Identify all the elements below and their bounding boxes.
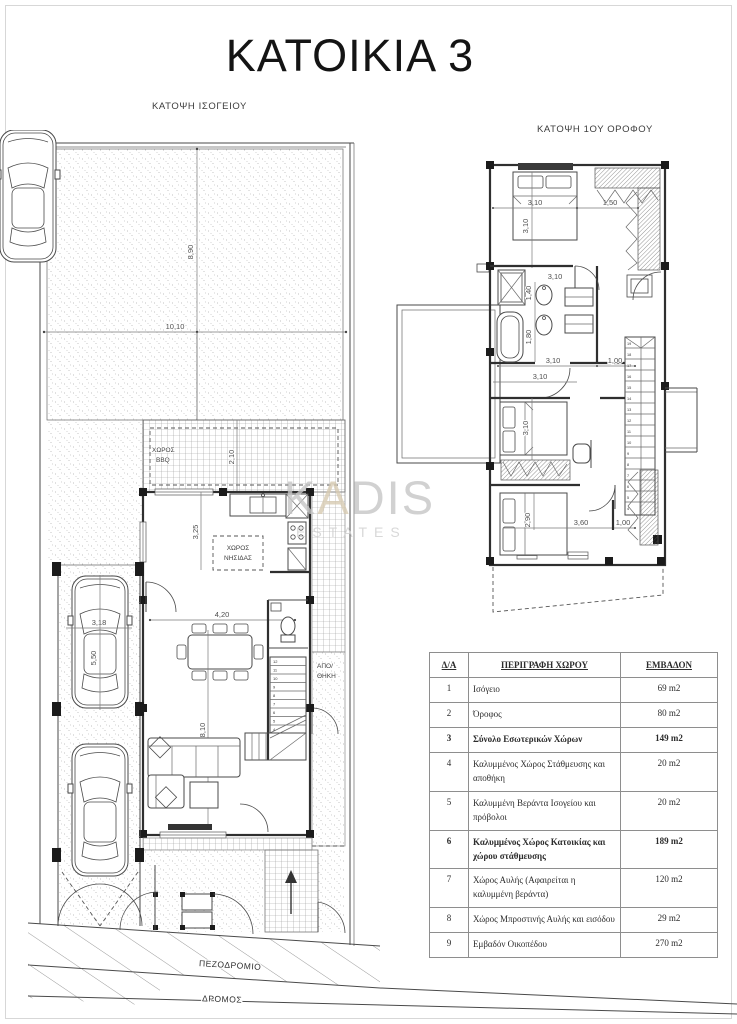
storage-label-2: ΘΗΚΗ: [317, 673, 336, 680]
row-area: 69 m2: [621, 678, 718, 703]
front-yard: [120, 850, 345, 934]
storage-label-1: ΑΠΟ/: [317, 663, 333, 670]
dim-bed1-d: 3,10: [521, 219, 530, 234]
stair-no: 6: [273, 710, 276, 715]
table-row: 9 Εμβαδόν Οικοπέδου 270 m2: [430, 933, 718, 958]
stair-no: 8: [273, 693, 276, 698]
table-row: 3 Σύνολο Εσωτερικών Χώρων 149 m2: [430, 727, 718, 752]
staircase-ground: 12 11 10 9 8 7 6 5 4: [245, 657, 306, 760]
dim-bed3-w: 3,60: [574, 518, 589, 527]
stair-no: 10: [627, 441, 631, 445]
veranda: [143, 838, 312, 850]
row-no: 5: [430, 791, 469, 830]
ground-plan-label: ΚΑΤΟΨΗ ΙΣΟΓΕΙΟΥ: [152, 101, 247, 112]
row-area: 120 m2: [621, 869, 718, 908]
header-desc: ΠΕΡΙΓΡΑΦΗ ΧΩΡΟΥ: [469, 653, 621, 678]
dim-closet-w: 1,50: [603, 198, 618, 207]
row-desc: Χώρος Αυλής (Αφαιρείται η καλυμμένη βερά…: [469, 869, 621, 908]
first-floor-plan: 3,10 1,50 3,10 3,10 1,40 1,80: [385, 130, 715, 640]
row-area: 270 m2: [621, 933, 718, 958]
dim-hall-w: 3,10: [546, 356, 561, 365]
bed3-door-arc: [589, 485, 615, 511]
dim-bath-w: 1,40: [524, 286, 533, 301]
row-desc: Εμβαδόν Οικοπέδου: [469, 933, 621, 958]
island-label-1: ΧΩΡΟΣ: [227, 545, 250, 552]
page-title: ΚΑΤΟΙΚΙΑ 3: [0, 30, 700, 82]
row-desc: Σύνολο Εσωτερικών Χώρων: [469, 727, 621, 752]
wc-sink: [271, 603, 281, 611]
row-desc: Όροφος: [469, 702, 621, 727]
table-row: 7 Χώρος Αυλής (Αφαιρείται η καλυμμένη βε…: [430, 869, 718, 908]
bed: [500, 493, 567, 555]
roof-outline: [493, 567, 663, 612]
dim-bed1-w: 3,10: [528, 198, 543, 207]
header-no: Δ/Α: [430, 653, 469, 678]
stair-no: 18: [627, 353, 631, 357]
stair-no: 11: [273, 668, 278, 673]
stair-no: 4: [627, 507, 629, 511]
table-row: 6 Καλυμμένος Χώρος Κατοικίας και χώρου σ…: [430, 830, 718, 869]
bathroom: 3,10 1,40 1,80: [490, 266, 625, 363]
hob: [288, 522, 306, 544]
table-row: 1 Ισόγειο 69 m2: [430, 678, 718, 703]
car: [0, 130, 60, 262]
desk-chair: [573, 444, 590, 463]
bedroom-2: 3,10 3,10: [490, 372, 625, 480]
row-no: 8: [430, 908, 469, 933]
row-area: 80 m2: [621, 702, 718, 727]
stair-no: 17: [627, 364, 631, 368]
stair-no: 9: [273, 685, 276, 690]
table-row: 5 Καλυμμένη Βεράντα Ισογείου και πρόβολο…: [430, 791, 718, 830]
stair-no: 14: [627, 397, 631, 401]
dim-bath-top: 3,10: [548, 272, 563, 281]
row-desc: Καλυμμένη Βεράντα Ισογείου και πρόβολοι: [469, 791, 621, 830]
stair-no: 9: [627, 452, 629, 456]
dim-bath-d: 1,80: [524, 330, 533, 345]
row-no: 3: [430, 727, 469, 752]
veranda-door-arc: [240, 804, 268, 832]
stair-no: 12: [273, 659, 278, 664]
row-no: 4: [430, 752, 469, 791]
side-ledge: [665, 388, 697, 452]
bbq-terrace: ΧΩΡΟΣ BBQ 2,10: [143, 420, 345, 492]
table-row: 4 Καλυμμένος Χώρος Στάθμευσης και αποθήκ…: [430, 752, 718, 791]
walk-in-closet: [595, 168, 661, 300]
bbq-label-1: ΧΩΡΟΣ: [152, 447, 175, 454]
dim-bed2-w: 3,10: [533, 372, 548, 381]
toilet: [281, 617, 295, 635]
dim-closet3-w: 1,00: [616, 518, 631, 527]
stair-no: 5: [273, 719, 276, 724]
dim-yard-width: 10,10: [166, 322, 185, 331]
dim-hall-d: 1,00: [608, 356, 623, 365]
header-area: ΕΜΒΑΔΟΝ: [621, 653, 718, 678]
dim-yard-depth: 8,90: [186, 245, 195, 260]
bedroom-3: 2,90 3,60 1,00: [490, 470, 658, 555]
row-desc: Καλυμμένος Χώρος Κατοικίας και χώρου στά…: [469, 830, 621, 869]
entry-door-arc: [146, 582, 176, 612]
row-area: 20 m2: [621, 752, 718, 791]
closet: [640, 470, 658, 545]
page: { "page": { "title": "ΚΑΤΟΙΚΙΑ 3" }, "wa…: [0, 0, 737, 1024]
dim-kitchen-depth: 3,25: [191, 525, 200, 540]
stair-no: 12: [627, 419, 631, 423]
headboard: [518, 163, 573, 170]
table-row: 2 Όροφος 80 m2: [430, 702, 718, 727]
stair-core: 12 11 10 9 8 7 6 5 4: [245, 600, 308, 760]
stair-no: 13: [627, 408, 631, 412]
bed: [500, 402, 567, 455]
row-area: 29 m2: [621, 908, 718, 933]
dim-living-depth: 8,10: [198, 723, 207, 738]
row-no: 6: [430, 830, 469, 869]
stair-no: 11: [627, 430, 631, 434]
sink: [536, 285, 552, 305]
stair-no: 8: [627, 463, 629, 467]
row-no: 2: [430, 702, 469, 727]
row-no: 9: [430, 933, 469, 958]
balcony: [397, 264, 500, 463]
areas-table: Δ/Α ΠΕΡΙΓΡΑΦΗ ΧΩΡΟΥ ΕΜΒΑΔΟΝ 1 Ισόγειο 69…: [429, 652, 718, 958]
stair-no: 19: [627, 342, 631, 346]
coffee-table: [190, 782, 218, 808]
row-area: 189 m2: [621, 830, 718, 869]
island-label-2: ΝΗΣΙΔΑΣ: [224, 555, 252, 562]
row-desc: Ισόγειο: [469, 678, 621, 703]
road-label: ΔΡΟΜΟΣ: [202, 993, 242, 1004]
stair-no: 15: [627, 386, 631, 390]
stair-no: 16: [627, 375, 631, 379]
dim-carport-length: 5,50: [89, 651, 98, 666]
kitchen: ΧΩΡΟΣ ΝΗΣΙΔΑΣ 3,25: [191, 492, 310, 572]
row-no: 1: [430, 678, 469, 703]
bbq-label-2: BBQ: [156, 457, 170, 464]
stair-no: 7: [627, 474, 629, 478]
dim-bbq-depth: 2,10: [227, 450, 236, 465]
dim-dining-width: 4,20: [215, 610, 230, 619]
table-header-row: Δ/Α ΠΕΡΙΓΡΑΦΗ ΧΩΡΟΥ ΕΜΒΑΔΟΝ: [430, 653, 718, 678]
stair-no: 7: [273, 702, 276, 707]
stair-no: 5: [627, 496, 629, 500]
stair-no: 6: [627, 485, 629, 489]
stair-no: 10: [273, 676, 278, 681]
row-desc: Καλυμμένος Χώρος Στάθμευσης και αποθήκη: [469, 752, 621, 791]
row-area: 20 m2: [621, 791, 718, 830]
tv-bench: [168, 824, 212, 830]
table-row: 8 Χώρος Μπροστινής Αυλής και εισόδου 29 …: [430, 908, 718, 933]
dim-bed3-d: 2,90: [523, 513, 532, 528]
row-area: 149 m2: [621, 727, 718, 752]
dim-carport-width: 3,18: [92, 618, 107, 627]
dim-bed2-d: 3,10: [521, 421, 530, 436]
side-strip: ΑΠΟ/ ΘΗΚΗ: [312, 492, 345, 846]
kitchen-island: [213, 536, 263, 570]
sink: [536, 315, 552, 335]
dining-table: [188, 635, 252, 669]
row-desc: Χώρος Μπροστινής Αυλής και εισόδου: [469, 908, 621, 933]
row-no: 7: [430, 869, 469, 908]
bath-door-arc: [575, 266, 599, 290]
